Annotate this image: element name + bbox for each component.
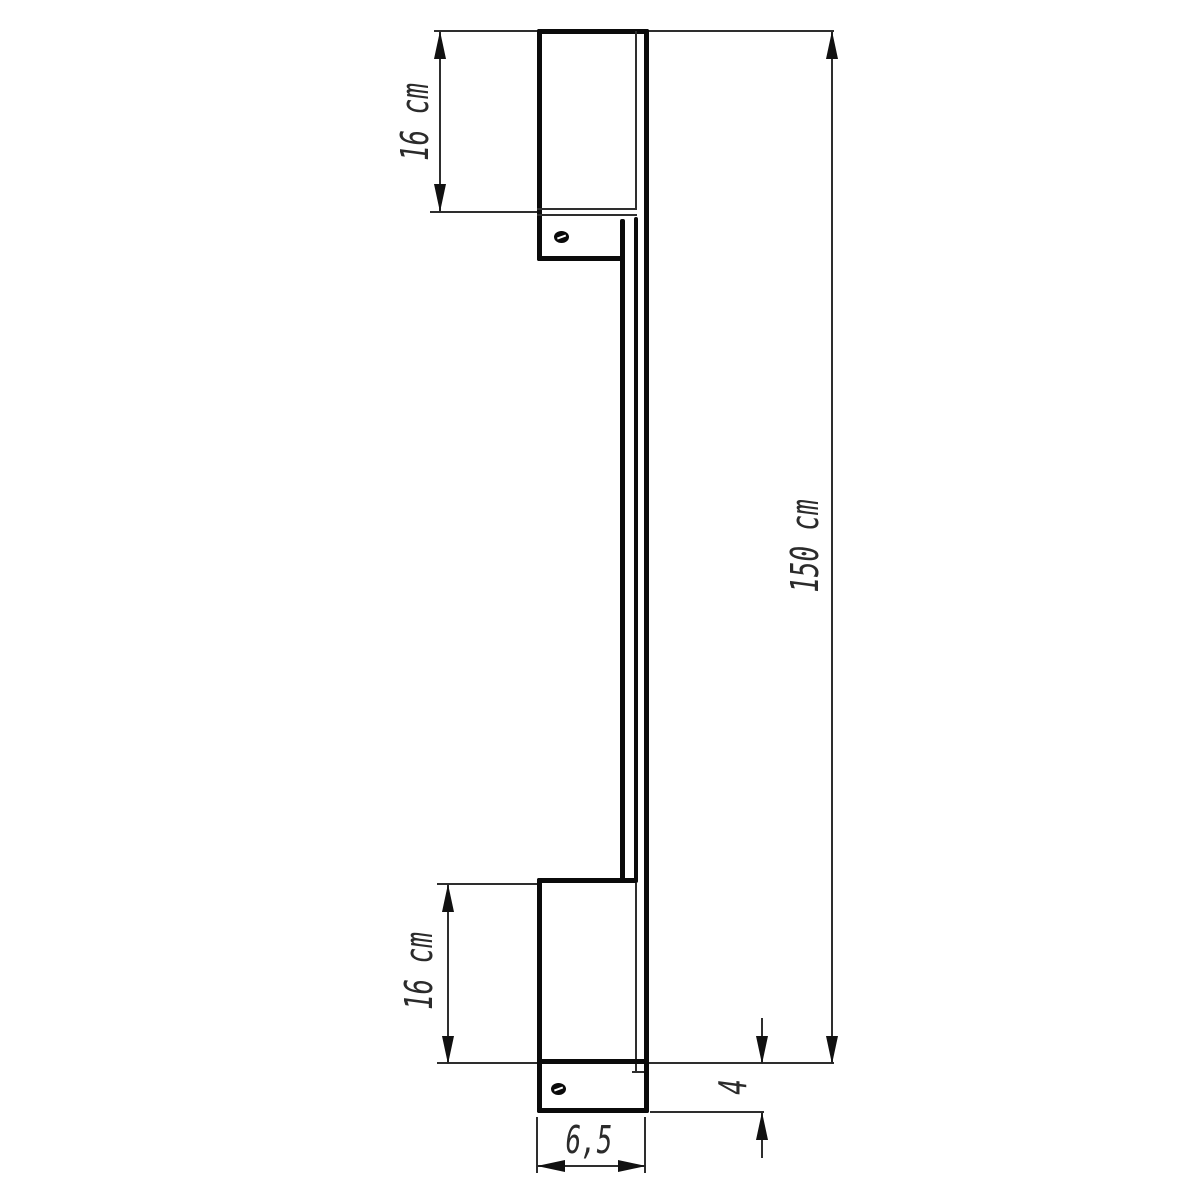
screw-slit xyxy=(557,235,566,239)
rod-middle-line xyxy=(634,217,638,882)
head-top-edge xyxy=(537,29,649,34)
bottom-box-top-edge xyxy=(537,878,638,883)
arrowhead-150-up xyxy=(826,31,838,59)
arrowhead-bottom16-up xyxy=(442,884,454,912)
extension-line-top16-bottom xyxy=(430,211,538,213)
head-band-line-lower xyxy=(537,214,637,216)
arrowhead-4-down xyxy=(756,1036,768,1064)
bottom-box-inner-line xyxy=(635,883,637,1073)
arrowhead-top16-up xyxy=(434,31,446,59)
extension-line-4-bottom xyxy=(650,1111,764,1113)
arrowhead-top16-down xyxy=(434,184,446,212)
mounting-screw-bottom xyxy=(551,1083,566,1095)
arrowhead-65-right xyxy=(618,1160,646,1172)
dim-label-bottom-section-height: 16 cm xyxy=(400,932,438,1010)
dim-label-bottom-offset: 4 xyxy=(714,1079,752,1095)
head-band-line-upper xyxy=(537,208,637,210)
arrowhead-4-up xyxy=(756,1112,768,1140)
arrowhead-bottom16-down xyxy=(442,1036,454,1064)
dim-label-body-width: 6,5 xyxy=(566,1121,613,1159)
dim-label-overall-length: 150 cm xyxy=(786,499,824,592)
mounting-screw-top xyxy=(554,231,569,243)
bottom-box-left-edge xyxy=(537,878,542,1113)
dim-label-top-section-height: 16 cm xyxy=(396,83,434,161)
bottom-box-band-edge xyxy=(537,1059,649,1064)
head-inner-line xyxy=(635,31,637,209)
screw-slit xyxy=(554,1087,563,1091)
side-long-right-edge xyxy=(644,29,649,1113)
arrowhead-65-left xyxy=(537,1160,565,1172)
rod-left-edge xyxy=(620,219,625,882)
head-left-edge xyxy=(537,29,542,261)
bottom-box-inner-tick xyxy=(632,1071,644,1073)
bottom-box-bottom-edge xyxy=(537,1108,649,1113)
arrowhead-150-down xyxy=(826,1036,838,1064)
technical-drawing-canvas: 16 cm 150 cm 16 cm 4 6,5 xyxy=(0,0,1200,1200)
top-bracket-bottom-edge xyxy=(537,256,625,261)
dimension-line-150cm xyxy=(831,31,833,1064)
